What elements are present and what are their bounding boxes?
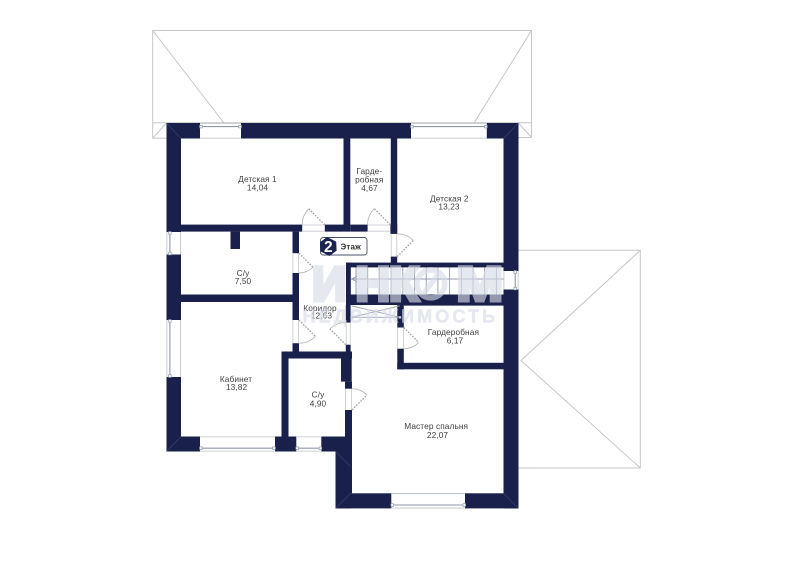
svg-text:М: М	[457, 258, 503, 312]
svg-text:22,07: 22,07	[427, 430, 449, 440]
svg-text:4,67: 4,67	[361, 183, 378, 193]
svg-text:НЕДВИЖИМОСТЬ: НЕДВИЖИМОСТЬ	[303, 306, 499, 326]
svg-text:Этаж: Этаж	[341, 242, 362, 251]
svg-text:6,17: 6,17	[447, 335, 464, 345]
svg-text:14,04: 14,04	[247, 182, 269, 192]
svg-text:2: 2	[324, 239, 333, 256]
svg-text:13,23: 13,23	[438, 202, 460, 212]
svg-text:4,90: 4,90	[310, 399, 327, 409]
svg-text:ИН: ИН	[312, 259, 399, 312]
svg-text:13,82: 13,82	[226, 382, 248, 392]
svg-text:7,50: 7,50	[235, 276, 252, 286]
